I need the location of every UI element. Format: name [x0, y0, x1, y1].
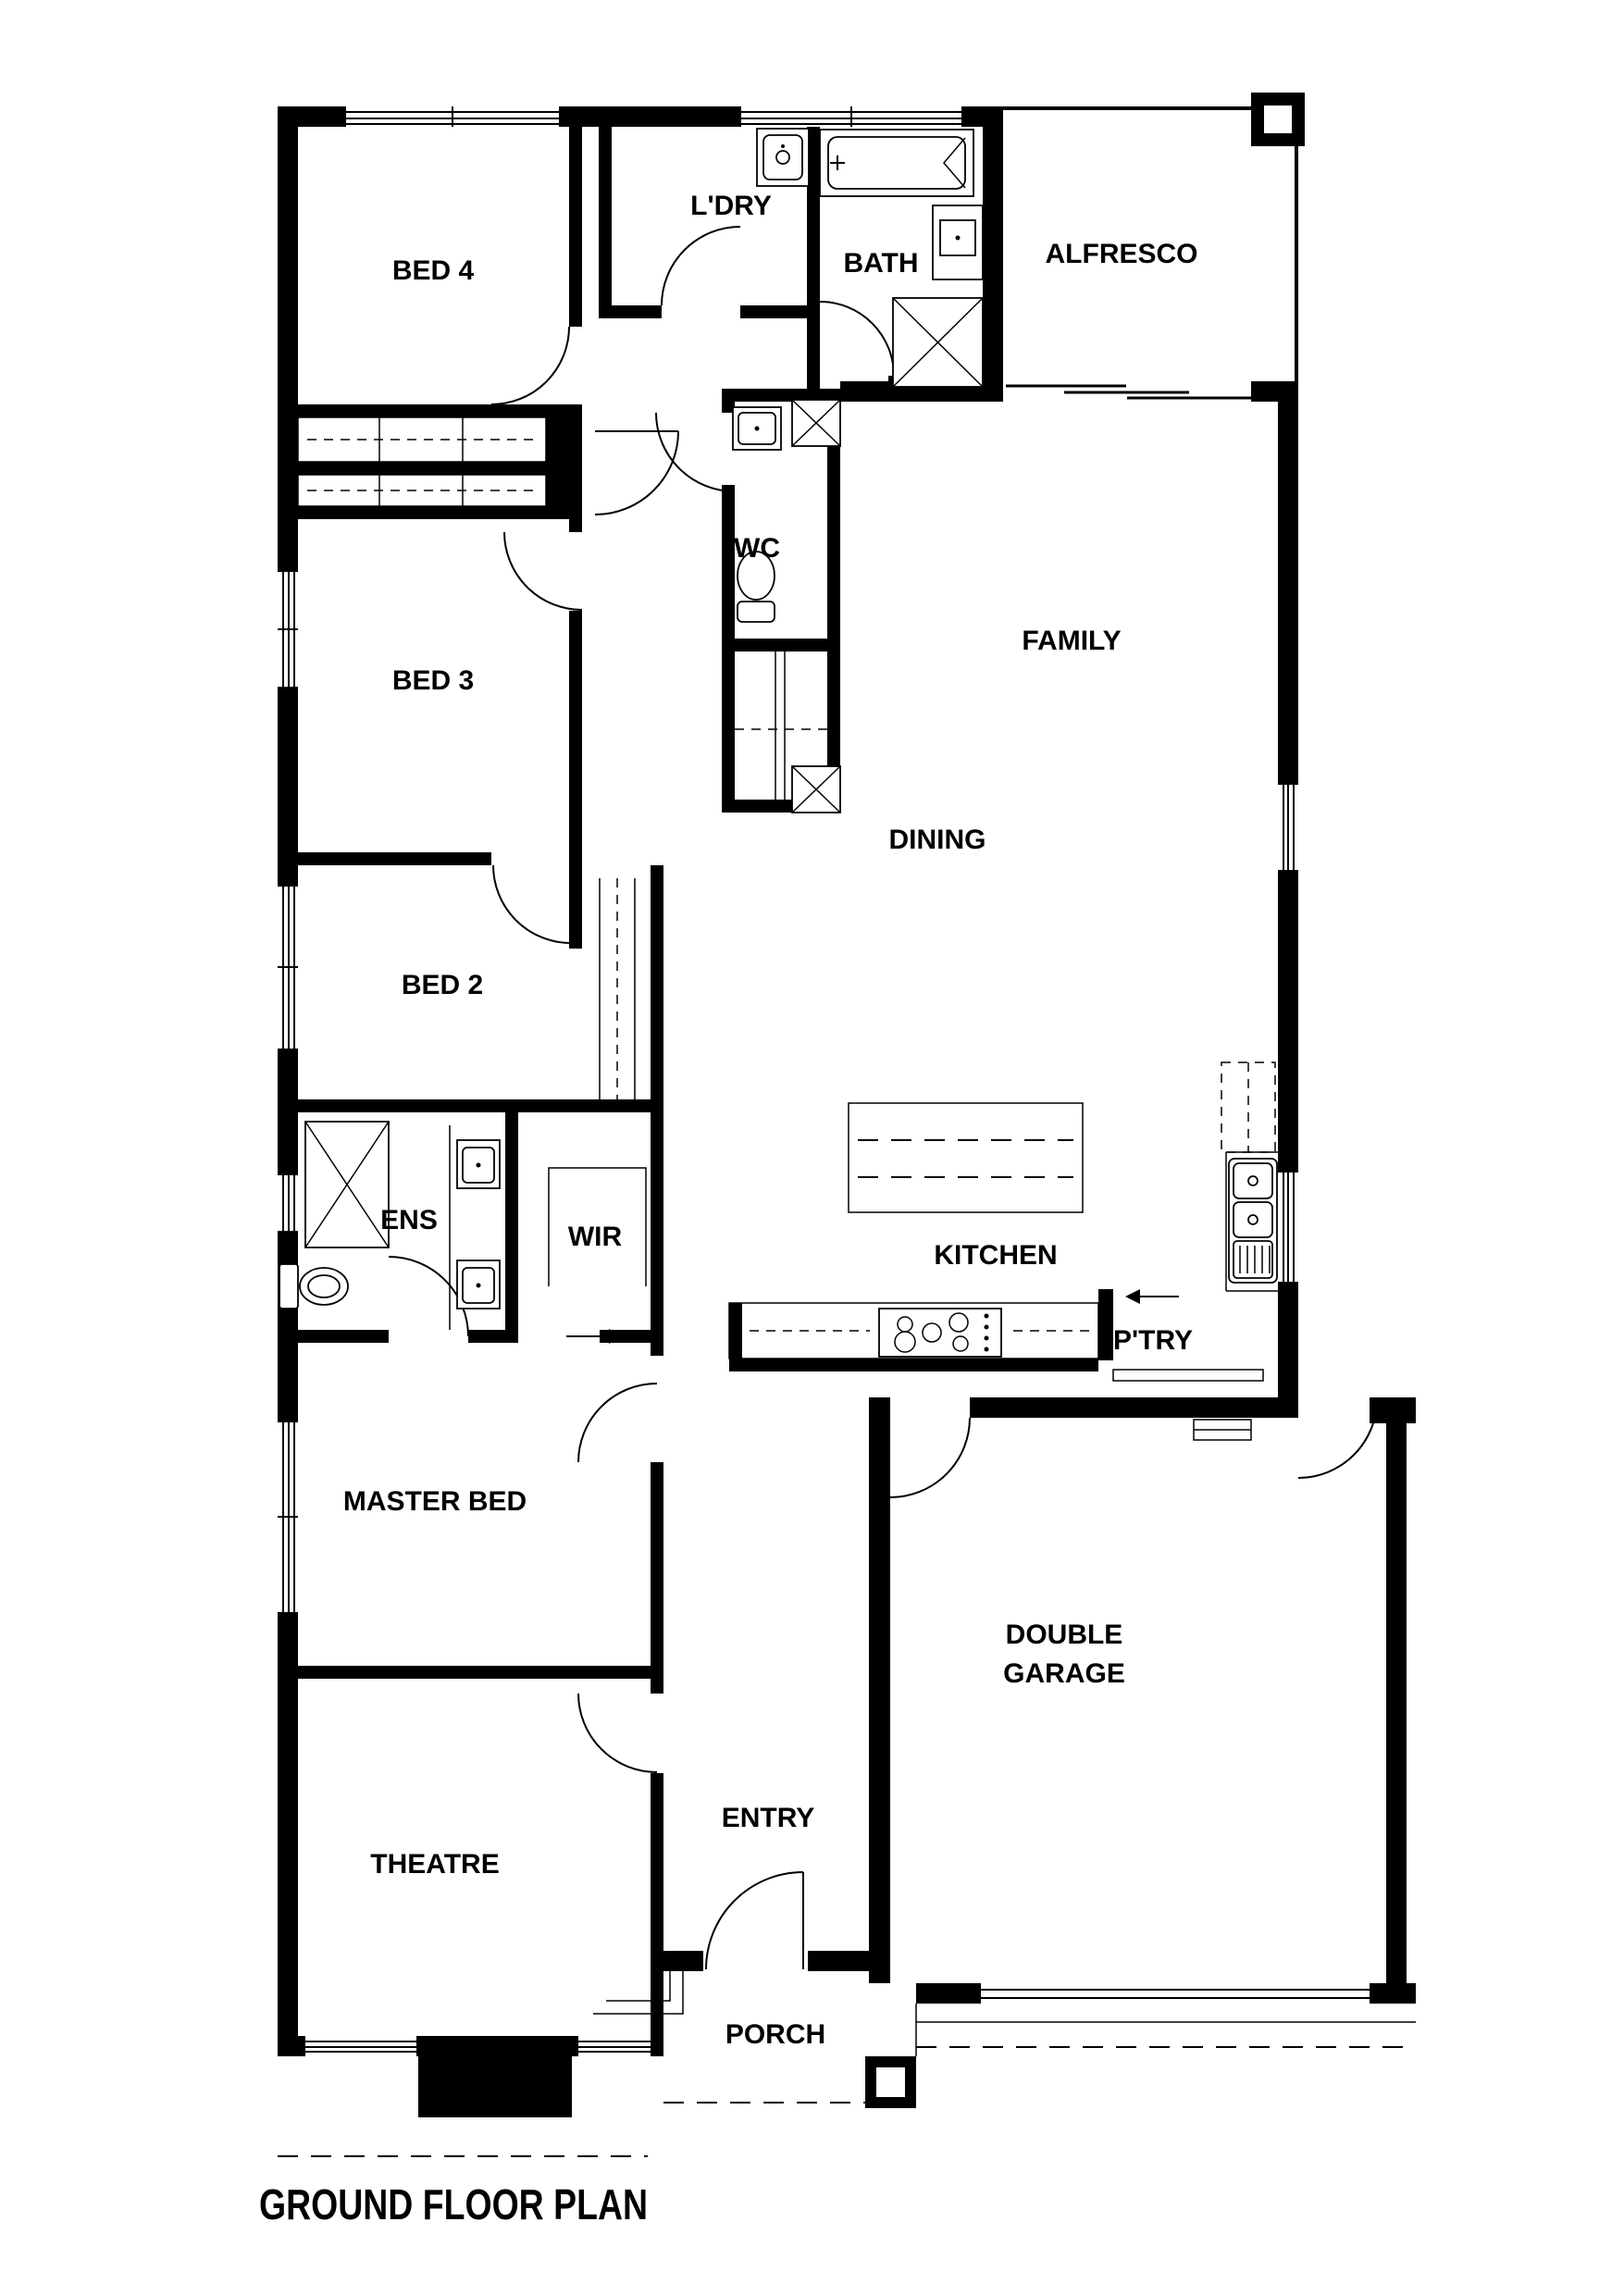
- room-label-wc: WC: [734, 533, 780, 564]
- ens-toilet-icon: [279, 1264, 348, 1309]
- cooktop-icon: [879, 1309, 1001, 1357]
- kitchen-sink-icon: [1226, 1152, 1278, 1291]
- floor-plan-page: BED 4 L'DRY BATH ALFRESCO WC FAMILY BED …: [0, 0, 1624, 2296]
- ens-vanity-icon: [450, 1125, 500, 1330]
- room-label-ldry: L'DRY: [690, 191, 772, 221]
- room-label-kitchen: KITCHEN: [934, 1240, 1057, 1271]
- laundry-trough-icon: [757, 129, 809, 186]
- room-label-alfresco: ALFRESCO: [1046, 239, 1198, 269]
- room-label-master: MASTER BED: [343, 1486, 527, 1517]
- bathtub-icon: [820, 130, 973, 196]
- room-label-bed4: BED 4: [392, 255, 475, 286]
- garage-landing: [1194, 1420, 1251, 1440]
- floor-plan-title: GROUND FLOOR PLAN: [259, 2180, 648, 2228]
- room-label-theatre: THEATRE: [370, 1849, 499, 1880]
- room-label-ens: ENS: [380, 1205, 438, 1235]
- room-label-entry: ENTRY: [722, 1803, 815, 1833]
- bath-shower-icon: [893, 298, 983, 387]
- stacker-door-icon: [1006, 386, 1251, 398]
- pantry-arrow-icon: [1125, 1289, 1179, 1304]
- wall-layer: [278, 93, 1416, 2117]
- room-label-wir: WIR: [568, 1222, 623, 1252]
- room-label-garage-line1: DOUBLE: [1006, 1620, 1123, 1650]
- room-label-ptry: P'TRY: [1113, 1325, 1193, 1356]
- fridge-space: [1221, 1062, 1275, 1152]
- floor-plan-svg: BED 4 L'DRY BATH ALFRESCO WC FAMILY BED …: [0, 0, 1624, 2296]
- wc-basin-icon: [733, 407, 781, 450]
- duct-box-top-icon: [792, 400, 840, 446]
- kitchen-island: [849, 1103, 1083, 1212]
- duct-box-bottom-icon: [792, 766, 840, 813]
- room-label-family: FAMILY: [1022, 626, 1121, 656]
- room-label-dining: DINING: [889, 825, 986, 855]
- pantry-shelf: [1113, 1370, 1263, 1381]
- room-label-porch: PORCH: [725, 2019, 825, 2050]
- room-label-bed3: BED 3: [392, 665, 474, 696]
- wir-robe-icon: [549, 1168, 646, 1344]
- robe-bed4-bed3: [298, 417, 546, 506]
- ens-shower-icon: [305, 1122, 389, 1247]
- room-label-garage-line2: GARAGE: [1003, 1658, 1125, 1689]
- robe-bed2: [600, 878, 635, 1099]
- room-label-bath: BATH: [843, 248, 918, 279]
- room-label-bed2: BED 2: [402, 970, 483, 1000]
- bath-vanity-icon: [933, 205, 983, 279]
